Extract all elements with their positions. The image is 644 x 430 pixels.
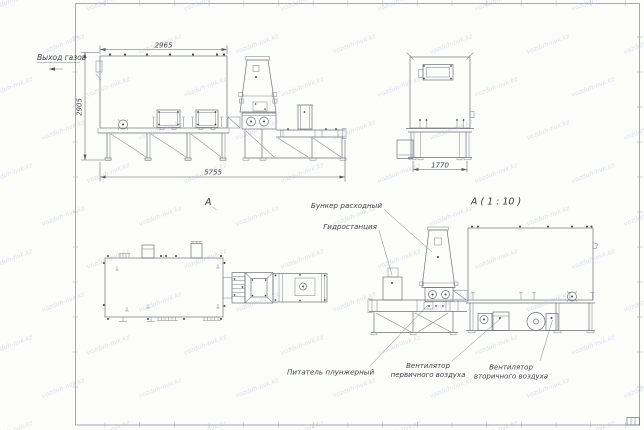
fan-secondary-label-line2: вторичного воздуха [474, 373, 548, 381]
hatch-box-2 [191, 110, 223, 130]
plan-coupling [223, 273, 245, 304]
stand-front [406, 129, 474, 160]
detail-hopper-tower [420, 227, 469, 302]
primary-air-fan [478, 312, 509, 331]
side-cabinet-front [397, 140, 413, 159]
gas-flow-arrow-icon [49, 67, 55, 71]
gas-duct-front [419, 65, 454, 81]
view-a-label: А [204, 197, 212, 208]
callout-fan-primary: Вентилятор первичного воздуха [391, 319, 500, 379]
plan-bottom-feet [119, 317, 221, 322]
anchor-studs-front [419, 119, 464, 128]
detail-furnace-body [466, 226, 598, 333]
secondary-air-fan [527, 313, 558, 331]
gas-outlet-callout: Выход газов [37, 53, 87, 71]
fan-secondary-label-line1: Вентилятор [489, 364, 533, 372]
furnace-support-frame [98, 128, 229, 160]
view-plan [103, 242, 327, 322]
dim-1770-text: 1770 [431, 162, 449, 170]
view-a-marker: А [204, 197, 217, 210]
gas-outlet-stub [96, 61, 102, 80]
feeder-label: Питатель плунжерный [287, 368, 374, 377]
drawing-sheet: 2965 2905 5755 Выход газов А [0, 0, 644, 430]
gas-outlet-label: Выход газов [37, 53, 86, 62]
dim-side-total-length: 5755 [100, 140, 345, 182]
view-detail-a: А ( 1 : 10 ) [287, 197, 598, 381]
frame-ruler-ticks [73, 1, 643, 428]
callout-hydro: Гидростанция [323, 222, 392, 275]
view-front: 1770 [397, 53, 474, 173]
hydro-station-box [383, 268, 402, 300]
dim-5755-text: 5755 [204, 169, 222, 177]
view-side-elevation: 2965 2905 5755 Выход газов А [37, 42, 347, 211]
dim-side-top-width: 2965 [100, 42, 227, 55]
dim-front-width: 1770 [413, 161, 467, 173]
sheet-frame [73, 1, 643, 428]
fan-primary-label-line2: первичного воздуха [391, 371, 466, 379]
fan-inlet-box-side [242, 113, 276, 129]
detail-title: А ( 1 : 10 ) [470, 197, 521, 208]
hydro-label: Гидростанция [323, 222, 377, 231]
plan-inner-marks [115, 264, 220, 311]
discharge-box [298, 105, 312, 129]
plan-bolt-dots [103, 255, 226, 320]
hopper-label: Бункер расходный [311, 201, 382, 210]
furnace-body-plan [105, 258, 223, 317]
furnace-body-side [100, 56, 227, 128]
plan-feeder [273, 274, 327, 303]
title-block-corner [627, 418, 640, 426]
connector-duct [228, 117, 240, 128]
dim-2965-text: 2965 [155, 42, 173, 50]
hatch-box-1 [152, 110, 185, 130]
detail-feeder [368, 299, 467, 335]
drawing-svg: 2965 2905 5755 Выход газов А [0, 0, 644, 430]
dim-2905-text: 2905 [76, 98, 84, 116]
fan-primary-label-line1: Вентилятор [406, 362, 450, 370]
plan-hopper-square [245, 273, 273, 304]
hopper-tower-side [239, 57, 277, 113]
